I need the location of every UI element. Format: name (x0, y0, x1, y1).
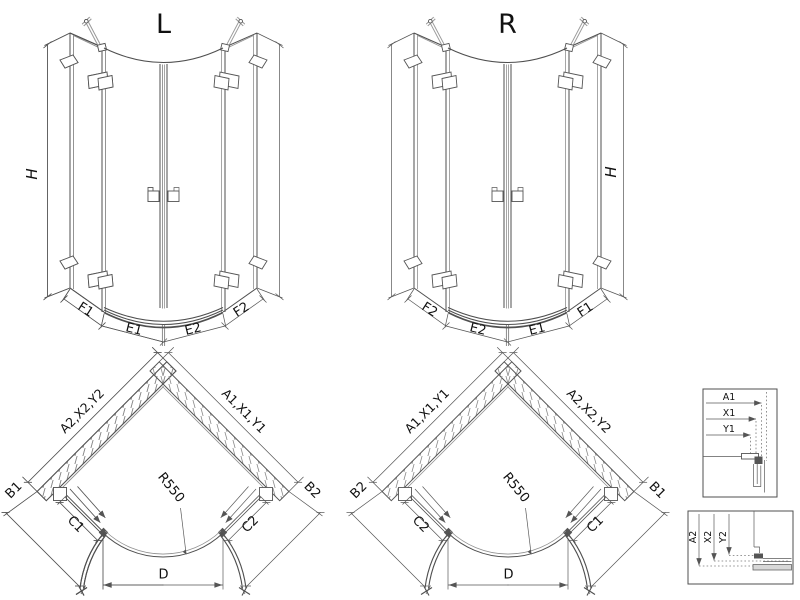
detail-top-dim-x1: X1 (723, 408, 736, 419)
detail-bottom-dim-y2: Y2 (718, 531, 729, 544)
technical-drawing-page: L H F1 E1 E2 F2 R H F2 E2 E1 F1 (0, 0, 800, 600)
detail-top-profile (742, 454, 765, 493)
segment-label-r-f1: F1 (575, 299, 596, 320)
segment-label-e1: E1 (124, 320, 144, 339)
plan-right-radius-label: R550 (499, 470, 532, 506)
segment-label-f1: F1 (75, 299, 96, 320)
tray-front-band (104, 308, 223, 328)
plan-half-mirror (150, 347, 325, 595)
height-label-right: H (602, 166, 620, 177)
view-title-left: L (156, 9, 171, 40)
plan-right-b2-label: B2 (348, 479, 371, 502)
segment-label-r-e1: E1 (527, 320, 547, 339)
segment-label-r-f2: F2 (419, 299, 440, 320)
segment-label-e2: E2 (183, 320, 203, 339)
plan-right-c1-label: C1 (584, 513, 607, 536)
segment-label-r-e2: E2 (468, 320, 488, 339)
elevation-right-geometry (388, 18, 628, 346)
front-arc-inner (105, 531, 221, 554)
detail-top-dim-y1: Y1 (722, 424, 735, 435)
segment-label-f2: F2 (231, 299, 252, 320)
plan-left-c2-label: C2 (239, 513, 262, 536)
wall-length-dimension (23, 347, 167, 491)
front-arc-outer (103, 533, 223, 557)
radius-leader-left (181, 508, 187, 555)
plan-left-radius-label: R550 (154, 470, 187, 506)
outer-b-dimension (2, 492, 86, 595)
door-top-curve (104, 48, 223, 63)
detail-panel-bottom: A2 X2 Y2 (688, 511, 793, 584)
detail-bottom-dim-x2: X2 (703, 531, 714, 544)
plan-right-d-label: D (503, 568, 513, 583)
detail-bottom-dim-a2: A2 (688, 531, 699, 544)
detail-top-dim-a1: A1 (723, 392, 736, 403)
radius-leader-right (526, 508, 532, 555)
detail-bottom-profile (753, 547, 792, 570)
elevation-half-mirror (164, 18, 284, 342)
plan-left-b2-label: B2 (301, 479, 324, 502)
elevation-right-labels: R H F2 E2 E1 F1 (419, 9, 620, 339)
view-title-right: R (498, 9, 517, 40)
plan-left-b1-label: B1 (3, 479, 26, 502)
plan-left-d-label: D (158, 568, 168, 583)
elevation-geometry (44, 18, 284, 346)
shower-enclosure-drawing: L H F1 E1 E2 F2 R H F2 E2 E1 F1 (0, 0, 800, 600)
elevation-left-labels: L H F1 E1 E2 F2 (23, 9, 252, 339)
plan-right-c2-label: C2 (409, 513, 432, 536)
door-span-dimension (103, 539, 164, 590)
plan-left-c1-label: C1 (64, 513, 87, 536)
plan-right-b1-label: B1 (646, 479, 669, 502)
height-label-left: H (23, 168, 41, 179)
detail-panel-top: A1 X1 Y1 (703, 389, 777, 497)
elevation-half-geometry (44, 18, 164, 342)
